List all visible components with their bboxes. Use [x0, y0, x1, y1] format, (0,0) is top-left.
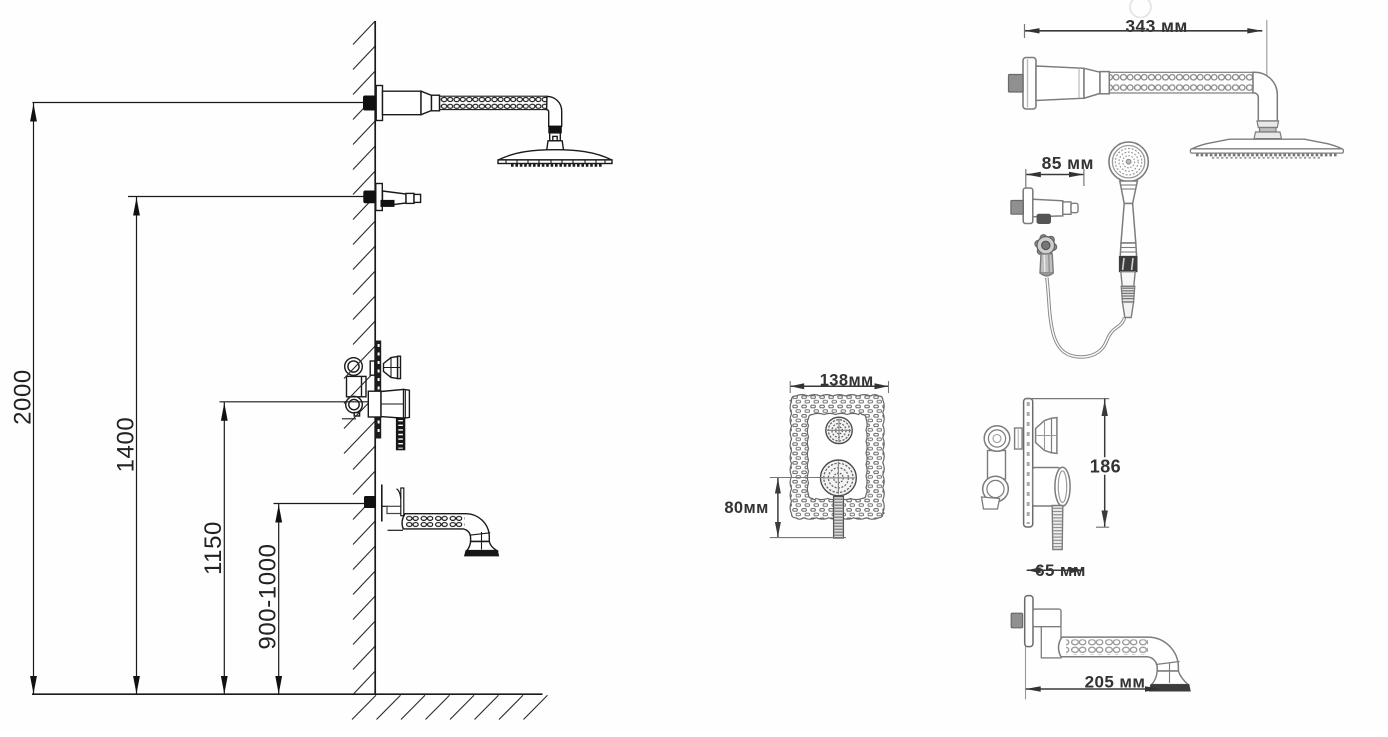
svg-text:343 мм: 343 мм — [1125, 16, 1187, 36]
svg-text:186: 186 — [1090, 457, 1121, 477]
svg-text:900-1000: 900-1000 — [255, 543, 282, 649]
svg-text:1400: 1400 — [113, 417, 140, 473]
svg-text:2000: 2000 — [10, 369, 37, 425]
svg-text:80мм: 80мм — [724, 499, 768, 517]
svg-text:85 мм: 85 мм — [1042, 153, 1094, 173]
svg-text:1150: 1150 — [200, 521, 227, 575]
